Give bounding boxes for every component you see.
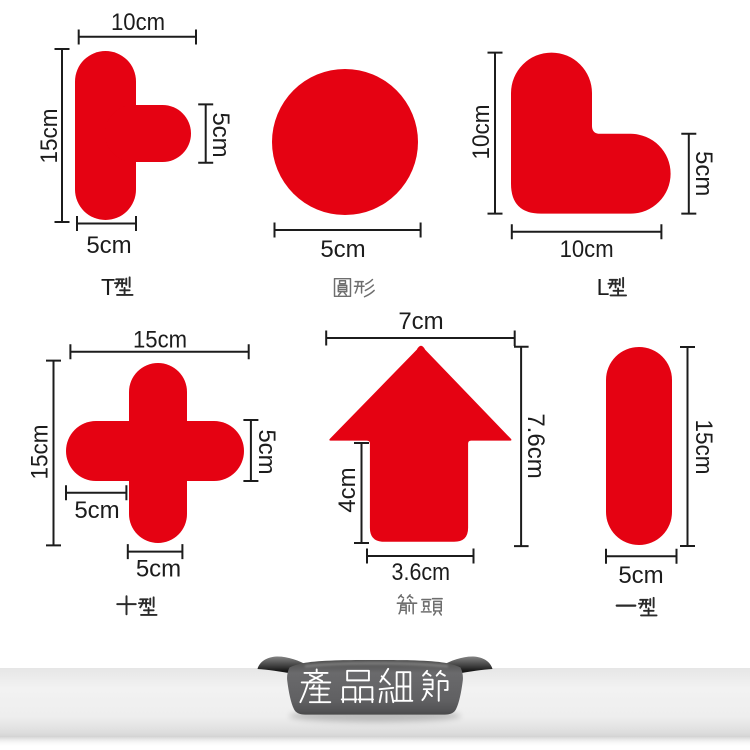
svg-text:3.6cm: 3.6cm xyxy=(392,559,451,586)
svg-text:L: L xyxy=(597,274,610,300)
svg-text:15cm: 15cm xyxy=(133,327,187,354)
svg-text:5cm: 5cm xyxy=(74,497,119,524)
svg-text:5cm: 5cm xyxy=(136,556,181,583)
svg-text:15cm: 15cm xyxy=(690,420,717,475)
svg-text:5cm: 5cm xyxy=(253,429,280,474)
svg-text:7.6cm: 7.6cm xyxy=(522,413,549,478)
svg-text:5cm: 5cm xyxy=(690,151,717,196)
svg-text:10cm: 10cm xyxy=(560,236,614,263)
svg-text:10cm: 10cm xyxy=(111,9,165,36)
svg-text:4cm: 4cm xyxy=(334,467,361,512)
svg-text:5cm: 5cm xyxy=(320,236,365,263)
svg-text:5cm: 5cm xyxy=(618,562,663,589)
svg-text:15cm: 15cm xyxy=(27,425,54,480)
svg-text:7cm: 7cm xyxy=(398,308,443,335)
svg-text:15cm: 15cm xyxy=(36,109,63,164)
svg-text:5cm: 5cm xyxy=(86,232,131,259)
svg-text:5cm: 5cm xyxy=(207,112,234,157)
svg-text:T: T xyxy=(101,274,115,300)
svg-text:10cm: 10cm xyxy=(468,105,495,160)
